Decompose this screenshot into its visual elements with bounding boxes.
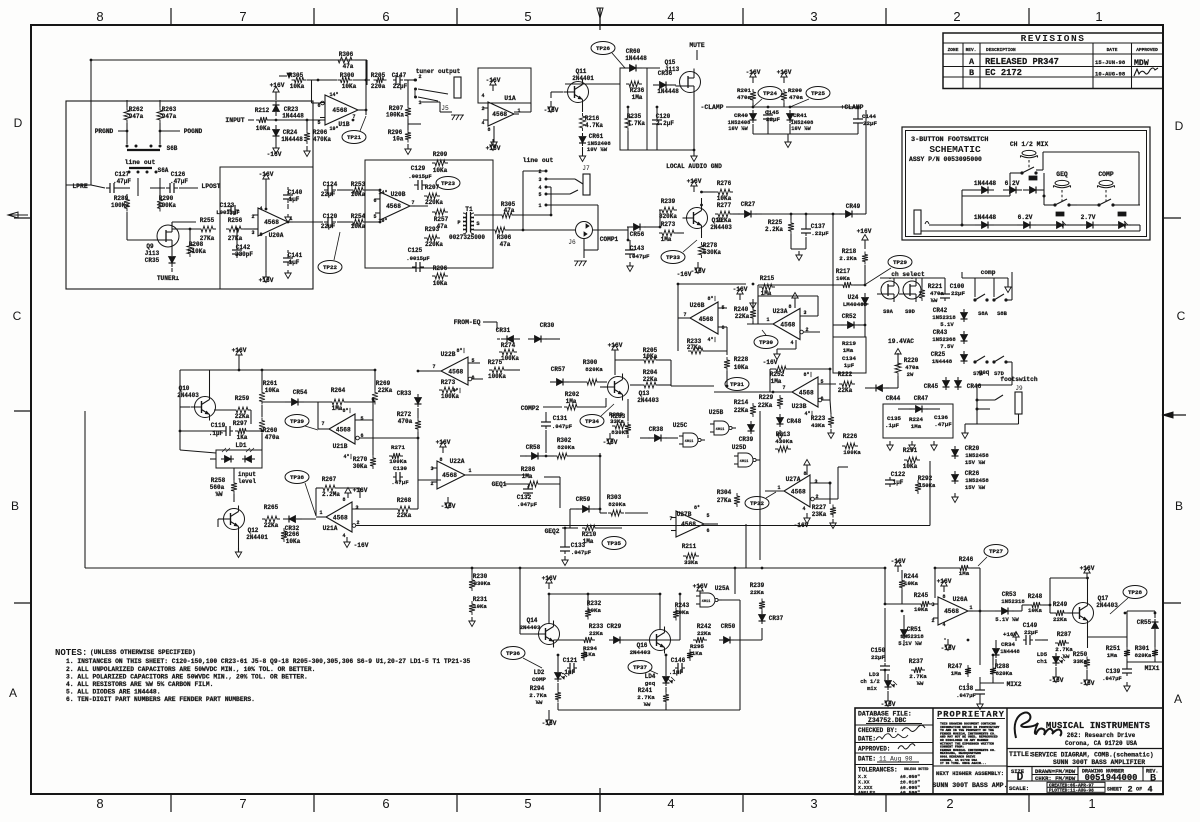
- svg-text:8: 8: [96, 796, 103, 811]
- svg-text:CR61: CR61: [589, 133, 604, 140]
- svg-text:R293: R293: [425, 226, 440, 233]
- svg-text:S8A: S8A: [978, 311, 988, 317]
- svg-text:J5: J5: [441, 105, 449, 112]
- svg-text:-16V: -16V: [354, 542, 369, 549]
- svg-text:R266: R266: [285, 531, 300, 538]
- svg-text:R210: R210: [582, 531, 597, 538]
- svg-text:R306: R306: [339, 51, 354, 58]
- svg-text:4568: 4568: [492, 111, 507, 118]
- svg-text:22Ka: 22Ka: [697, 630, 711, 637]
- svg-text:±0.500": ±0.500": [900, 790, 920, 796]
- svg-text:CR55: CR55: [1137, 619, 1152, 626]
- svg-text:CR44: CR44: [886, 395, 901, 402]
- svg-text:C135: C135: [887, 415, 901, 422]
- svg-text:C145: C145: [765, 109, 779, 116]
- svg-text:R255: R255: [200, 217, 215, 224]
- svg-text:1µF: 1µF: [844, 362, 855, 369]
- svg-text:R288: R288: [995, 663, 1010, 670]
- svg-text:R256: R256: [228, 217, 243, 224]
- svg-text:820Ka: 820Ka: [585, 366, 603, 373]
- svg-text:ZONE: ZONE: [948, 47, 959, 53]
- svg-text:Q11: Q11: [576, 68, 587, 75]
- svg-text:5: 5: [373, 214, 376, 220]
- svg-text:8: 8: [439, 457, 442, 463]
- svg-text:220a: 220a: [371, 83, 386, 90]
- svg-text:U21A: U21A: [323, 525, 338, 532]
- svg-text:NEXT HIGHER ASSEMBLY:: NEXT HIGHER ASSEMBLY:: [936, 771, 1004, 777]
- svg-text:+16V: +16V: [857, 228, 872, 235]
- svg-text:7: 7: [321, 421, 324, 427]
- svg-text:L0033µF: L0033µF: [216, 209, 240, 216]
- svg-text:33Ka: 33Ka: [684, 559, 698, 566]
- svg-text:5: 5: [524, 9, 531, 24]
- svg-text:100Ka: 100Ka: [158, 202, 176, 209]
- svg-text:B: B: [11, 499, 19, 513]
- svg-text:¼W: ¼W: [644, 701, 651, 708]
- svg-text:1Ma: 1Ma: [843, 347, 854, 354]
- svg-text:TP35: TP35: [607, 540, 621, 547]
- svg-text:100Ka: 100Ka: [488, 373, 506, 380]
- svg-text:4: 4: [342, 533, 345, 539]
- svg-text:REVISIONS: REVISIONS: [1021, 33, 1086, 44]
- svg-text:22Ka: 22Ka: [758, 402, 773, 409]
- svg-text:R258: R258: [211, 477, 226, 484]
- svg-text:R229: R229: [759, 394, 774, 401]
- svg-text:DESCRIPTION: DESCRIPTION: [986, 47, 1016, 53]
- svg-text:(UNLESS OTHERWISE SPECIFIED): (UNLESS OTHERWISE SPECIFIED): [90, 649, 196, 656]
- svg-text:C149: C149: [1023, 622, 1038, 629]
- svg-text:CR46: CR46: [967, 383, 982, 390]
- svg-text:10Ka: 10Ka: [643, 353, 658, 360]
- svg-text:+CLAMP: +CLAMP: [840, 104, 863, 111]
- svg-text:330Ka: 330Ka: [474, 580, 491, 587]
- svg-text:S6B: S6B: [167, 145, 178, 152]
- svg-text:10a: 10a: [393, 136, 404, 143]
- svg-text:22Ka: 22Ka: [264, 522, 279, 529]
- svg-text:C141: C141: [288, 252, 303, 259]
- svg-text:R277: R277: [717, 202, 732, 209]
- svg-text:22Ka: 22Ka: [643, 376, 658, 383]
- svg-text:P: P: [457, 220, 460, 226]
- svg-text:R224: R224: [909, 416, 923, 423]
- svg-text:1Ma: 1Ma: [959, 570, 970, 577]
- svg-text:2N4401: 2N4401: [572, 75, 594, 82]
- svg-text:C147: C147: [392, 72, 407, 79]
- svg-text:4568: 4568: [332, 107, 347, 114]
- svg-text:2N4403: 2N4403: [630, 649, 651, 656]
- svg-text:4*|: 4*|: [707, 337, 716, 343]
- svg-text:2.7Ka: 2.7Ka: [637, 694, 655, 701]
- svg-text:U25A: U25A: [715, 585, 730, 592]
- svg-text:R253: R253: [351, 181, 366, 188]
- svg-text:tuner output: tuner output: [416, 68, 461, 75]
- svg-text:3: 3: [810, 9, 817, 24]
- svg-text:7.5V: 7.5V: [940, 343, 954, 350]
- svg-text:4568: 4568: [264, 219, 279, 226]
- svg-text:6: 6: [706, 528, 709, 534]
- svg-text:CR48: CR48: [787, 418, 802, 425]
- svg-text:10Ka: 10Ka: [256, 125, 271, 132]
- svg-text:UNLESS NOTED: UNLESS NOTED: [904, 768, 928, 772]
- svg-text:1N52318: 1N52318: [900, 633, 924, 640]
- svg-text:GEQ1: GEQ1: [492, 481, 507, 488]
- svg-text:C136: C136: [934, 414, 948, 421]
- svg-text:R236: R236: [630, 87, 645, 94]
- svg-text:C129: C129: [411, 165, 426, 172]
- svg-text:4: 4: [538, 185, 541, 191]
- svg-text:SERVICE DIAGRAM, COMB.(schemat: SERVICE DIAGRAM, COMB.(schematic): [1031, 752, 1154, 759]
- svg-text:100Ka: 100Ka: [501, 355, 519, 362]
- svg-text:.1µF: .1µF: [885, 422, 899, 429]
- svg-text:R304: R304: [717, 489, 732, 496]
- svg-text:C132: C132: [517, 494, 532, 501]
- svg-text:TP27: TP27: [989, 548, 1003, 555]
- svg-text:6: 6: [373, 198, 376, 204]
- svg-text:8: 8: [487, 127, 490, 133]
- svg-text:C122: C122: [891, 471, 906, 478]
- svg-text:CR30: CR30: [540, 322, 555, 329]
- svg-text:2N4403: 2N4403: [1096, 602, 1118, 609]
- svg-text:27Ka: 27Ka: [228, 235, 243, 242]
- svg-text:EC 2172: EC 2172: [985, 68, 1022, 78]
- svg-text:22Ka: 22Ka: [235, 413, 250, 420]
- svg-text:NOTES:: NOTES:: [55, 648, 87, 658]
- svg-text:5.1V: 5.1V: [940, 321, 954, 328]
- svg-text:.047µF: .047µF: [1102, 676, 1121, 682]
- svg-text:947a: 947a: [162, 113, 177, 120]
- svg-text:CR34: CR34: [1001, 641, 1015, 648]
- svg-text:2: 2: [251, 214, 254, 220]
- svg-text:R302: R302: [557, 437, 572, 444]
- svg-text:INPUT: INPUT: [225, 117, 244, 124]
- svg-text:R292: R292: [918, 475, 933, 482]
- svg-text:TP30: TP30: [759, 339, 773, 346]
- svg-text:.1µF: .1µF: [669, 669, 684, 676]
- svg-text:R278: R278: [703, 242, 718, 249]
- svg-text:U23A: U23A: [773, 308, 788, 315]
- svg-text:.22µF: .22µF: [811, 230, 829, 237]
- svg-text:830Ka: 830Ka: [611, 429, 629, 436]
- svg-text:1N4448: 1N4448: [657, 88, 679, 95]
- svg-text:15-JUN-98: 15-JUN-98: [1095, 59, 1126, 66]
- svg-text:C120: C120: [323, 213, 338, 220]
- svg-text:15V ½W: 15V ½W: [965, 459, 986, 466]
- svg-text:820Ka: 820Ka: [996, 670, 1013, 677]
- svg-text:530Ka: 530Ka: [703, 249, 721, 256]
- svg-text:470a: 470a: [398, 418, 413, 425]
- svg-text:10Ka: 10Ka: [734, 364, 749, 371]
- svg-text:TP32: TP32: [750, 500, 764, 507]
- svg-text:4.7Ka: 4.7Ka: [585, 122, 603, 129]
- svg-text:22Ka: 22Ka: [735, 313, 750, 320]
- svg-text:SUNN 300T BASS AMPLIFIER: SUNN 300T BASS AMPLIFIER: [1053, 759, 1145, 766]
- svg-text:COMP1: COMP1: [600, 236, 619, 243]
- svg-text:10Ka: 10Ka: [286, 538, 301, 545]
- svg-text:R294: R294: [530, 685, 545, 692]
- svg-text:27Ka: 27Ka: [717, 497, 732, 504]
- svg-text:1: 1: [468, 468, 471, 474]
- svg-text:4568: 4568: [799, 390, 814, 397]
- svg-text:10-AUG-98: 10-AUG-98: [1095, 71, 1126, 78]
- svg-text:1N52318: 1N52318: [1001, 598, 1025, 605]
- svg-text:R233: R233: [589, 623, 604, 630]
- svg-text:2: 2: [953, 9, 960, 24]
- svg-text:COMP: COMP: [532, 676, 546, 683]
- svg-text:CR26: CR26: [965, 470, 980, 477]
- svg-text:R202: R202: [565, 391, 580, 398]
- svg-text:22Ka: 22Ka: [734, 407, 749, 414]
- svg-text:1: 1: [319, 510, 322, 516]
- svg-text:Q15: Q15: [665, 59, 676, 66]
- svg-text:1µF: 1µF: [289, 259, 300, 266]
- svg-text:U22B: U22B: [441, 351, 456, 358]
- svg-text:.047µF: .047µF: [552, 423, 573, 430]
- svg-text:C146: C146: [671, 657, 686, 664]
- svg-text:R272: R272: [397, 411, 412, 418]
- svg-text:COMP: COMP: [1098, 171, 1114, 178]
- svg-text:10Ka: 10Ka: [836, 275, 850, 282]
- svg-text:R270: R270: [353, 456, 368, 463]
- svg-text:S8B: S8B: [997, 311, 1007, 317]
- svg-text:Corona, CA 91720 USA: Corona, CA 91720 USA: [1065, 740, 1137, 747]
- svg-text:R204: R204: [643, 369, 658, 376]
- svg-text:B: B: [969, 68, 974, 78]
- svg-text:¼W: ¼W: [536, 699, 543, 706]
- svg-text:PLOTTED:11-AUG-98: PLOTTED:11-AUG-98: [1049, 789, 1094, 794]
- svg-text:2: 2: [430, 481, 433, 487]
- svg-text:10Ka: 10Ka: [675, 609, 689, 616]
- svg-text:R207: R207: [425, 184, 440, 191]
- svg-text:23Ka: 23Ka: [812, 511, 827, 518]
- svg-text:.0015µF: .0015µF: [408, 173, 432, 180]
- svg-text:COMP2: COMP2: [521, 405, 540, 412]
- svg-text:C125: C125: [408, 247, 423, 254]
- svg-text:R242: R242: [697, 623, 712, 630]
- svg-text:CR56: CR56: [630, 231, 645, 238]
- svg-text:470Ka: 470Ka: [313, 136, 331, 143]
- svg-text:470a: 470a: [789, 94, 803, 101]
- svg-text:R222: R222: [838, 371, 853, 378]
- svg-text:D: D: [1017, 771, 1024, 784]
- svg-text:R251: R251: [1106, 645, 1121, 652]
- svg-text:-16V: -16V: [677, 271, 692, 278]
- svg-text:CR29: CR29: [607, 623, 622, 630]
- svg-text:C121: C121: [563, 657, 578, 664]
- svg-text:5: 5: [538, 192, 541, 198]
- svg-text:C130: C130: [393, 465, 407, 472]
- svg-text:2N4401: 2N4401: [246, 534, 268, 541]
- svg-text:R252: R252: [770, 371, 785, 378]
- svg-text:CR59: CR59: [576, 496, 591, 503]
- svg-text:2: 2: [418, 74, 421, 80]
- svg-text:2: 2: [538, 169, 541, 175]
- svg-text:R257: R257: [434, 216, 449, 223]
- svg-text:3: 3: [931, 602, 934, 608]
- svg-text:150Ka: 150Ka: [919, 482, 936, 489]
- svg-text:820Ka: 820Ka: [557, 444, 575, 451]
- svg-text:U1A: U1A: [504, 95, 516, 102]
- svg-text:R250: R250: [1073, 651, 1088, 658]
- svg-text:4011: 4011: [740, 460, 749, 464]
- svg-text:CR45: CR45: [924, 383, 939, 390]
- svg-text:CR58: CR58: [526, 444, 541, 451]
- svg-text:1: 1: [538, 203, 541, 209]
- svg-text:R208: R208: [189, 241, 204, 248]
- svg-text:R218: R218: [842, 248, 857, 255]
- svg-text:TP39: TP39: [290, 418, 304, 425]
- svg-text:C139: C139: [1106, 668, 1121, 675]
- svg-text:2: 2: [946, 796, 953, 811]
- svg-text:4: 4: [667, 9, 674, 24]
- svg-text:R249: R249: [1053, 601, 1068, 608]
- svg-text:J113: J113: [145, 250, 160, 257]
- svg-text:C140: C140: [288, 189, 303, 196]
- svg-text:R227: R227: [812, 504, 827, 511]
- svg-text:S9A: S9A: [883, 309, 893, 315]
- svg-text:R269: R269: [376, 380, 391, 387]
- svg-text:U26A: U26A: [953, 596, 968, 603]
- svg-text:R287: R287: [1057, 631, 1072, 638]
- svg-text:CR43: CR43: [933, 329, 948, 336]
- svg-text:U25C: U25C: [673, 422, 688, 429]
- svg-text:½W: ½W: [1063, 653, 1070, 660]
- svg-text:-CLAMP: -CLAMP: [700, 104, 723, 111]
- svg-text:4568: 4568: [336, 427, 351, 434]
- svg-text:8: 8: [96, 9, 103, 24]
- svg-text:U25D: U25D: [732, 444, 747, 451]
- svg-text:-16V: -16V: [794, 522, 809, 529]
- svg-text:1: 1: [777, 485, 780, 491]
- svg-text:CR20: CR20: [965, 445, 980, 452]
- svg-text:U23B: U23B: [792, 403, 807, 410]
- svg-text:10V ½W: 10V ½W: [587, 146, 608, 153]
- svg-text:TP23: TP23: [441, 180, 455, 187]
- svg-text:CR38: CR38: [649, 426, 664, 433]
- svg-text:R213: R213: [776, 431, 791, 438]
- svg-text:4568: 4568: [448, 369, 463, 376]
- svg-text:22Ka: 22Ka: [589, 630, 603, 637]
- svg-text:8*|: 8*|: [803, 372, 812, 378]
- svg-text:7: 7: [411, 200, 414, 206]
- svg-text:J7: J7: [582, 165, 590, 172]
- svg-text:8: 8: [342, 497, 345, 503]
- svg-text:R221: R221: [928, 283, 943, 290]
- svg-text:U1B: U1B: [338, 121, 349, 128]
- svg-text:6: 6: [721, 325, 724, 331]
- svg-text:ANGLES: ANGLES: [858, 790, 875, 796]
- svg-text:CR41: CR41: [793, 112, 807, 119]
- svg-text:REV.: REV.: [966, 47, 977, 53]
- svg-text:R274: R274: [501, 342, 516, 349]
- svg-text:22µF: 22µF: [951, 290, 965, 297]
- svg-text:4011: 4011: [716, 428, 725, 432]
- svg-text:2N4403: 2N4403: [637, 397, 659, 404]
- svg-text:CR42: CR42: [933, 307, 948, 314]
- svg-text:C138: C138: [959, 685, 974, 692]
- svg-text:5: 5: [524, 796, 531, 811]
- svg-text:R267: R267: [322, 476, 337, 483]
- svg-text:geq: geq: [979, 369, 990, 376]
- svg-text:R265: R265: [264, 504, 279, 511]
- svg-text:RELEASED PR347: RELEASED PR347: [985, 57, 1059, 67]
- svg-text:4568: 4568: [699, 316, 714, 323]
- svg-text:6: 6: [382, 9, 389, 24]
- svg-text:2.2Ka: 2.2Ka: [765, 226, 783, 233]
- svg-text:R296: R296: [433, 265, 448, 272]
- svg-text:R306: R306: [497, 234, 512, 241]
- svg-text:4568: 4568: [442, 472, 457, 479]
- svg-text:4: 4: [259, 206, 262, 212]
- svg-text:R226: R226: [843, 433, 858, 440]
- svg-text:5: 5: [360, 416, 363, 422]
- svg-text:820Ka: 820Ka: [1135, 652, 1152, 659]
- svg-text:1µF: 1µF: [289, 196, 300, 203]
- svg-text:3: 3: [251, 230, 254, 236]
- svg-text:6: 6: [317, 103, 320, 109]
- svg-text:U20B: U20B: [391, 191, 406, 198]
- svg-text:5.1V ½W: 5.1V ½W: [995, 616, 1019, 623]
- svg-text:R286: R286: [521, 466, 536, 473]
- svg-text:DATE: DATE: [1107, 47, 1118, 53]
- svg-text:470a: 470a: [737, 94, 751, 101]
- svg-text:1: 1: [1095, 9, 1102, 24]
- svg-text:SHEET: SHEET: [1107, 787, 1122, 793]
- svg-text:R215: R215: [760, 275, 775, 282]
- svg-text:D: D: [1175, 119, 1184, 133]
- svg-text:8: 8: [803, 471, 806, 477]
- svg-text:8*|: 8*|: [707, 296, 716, 302]
- svg-text:CR24: CR24: [283, 129, 298, 136]
- svg-text:15V ½W: 15V ½W: [965, 484, 986, 491]
- svg-text:8: 8: [942, 594, 945, 600]
- svg-text:Q16: Q16: [637, 642, 648, 649]
- svg-text:330pF: 330pF: [235, 251, 253, 258]
- svg-text:22Ka: 22Ka: [717, 217, 732, 224]
- svg-text:TP28: TP28: [1128, 589, 1142, 596]
- svg-text:.47µF: .47µF: [391, 479, 409, 486]
- svg-text:C100: C100: [950, 283, 965, 290]
- svg-text:B: B: [1175, 499, 1183, 513]
- svg-text:10Ka: 10Ka: [342, 83, 357, 90]
- svg-text:CR47: CR47: [914, 395, 929, 402]
- svg-text:2.7Ka: 2.7Ka: [909, 673, 927, 680]
- svg-text:U27A: U27A: [786, 476, 801, 483]
- svg-text:100Ka: 100Ka: [389, 458, 407, 465]
- svg-text:.0015µF: .0015µF: [406, 255, 430, 262]
- svg-text:APPROVED: APPROVED: [1136, 47, 1158, 53]
- svg-text:CR52: CR52: [842, 313, 857, 320]
- svg-text:SUNN 300T BASS AMP.: SUNN 300T BASS AMP.: [932, 782, 1007, 789]
- svg-text:1Ma: 1Ma: [1107, 652, 1118, 659]
- svg-text:33Ka: 33Ka: [1073, 658, 1087, 665]
- svg-text:CHECKED BY:: CHECKED BY:: [858, 727, 898, 734]
- svg-text:TP22: TP22: [323, 264, 337, 271]
- svg-text:ch1: ch1: [1037, 658, 1048, 665]
- svg-text:MDW: MDW: [1134, 59, 1149, 68]
- svg-text:1Ma: 1Ma: [951, 670, 962, 677]
- svg-text:CR53: CR53: [1002, 591, 1017, 598]
- svg-text:Q17: Q17: [1098, 595, 1109, 602]
- svg-text:LD1: LD1: [235, 442, 246, 449]
- svg-text:FROM-EQ: FROM-EQ: [454, 319, 481, 326]
- svg-text:R206: R206: [313, 129, 328, 136]
- svg-text:.47µF: .47µF: [934, 421, 952, 428]
- svg-text:Q14: Q14: [527, 617, 538, 624]
- svg-text:DRAWN=FM/MDW: DRAWN=FM/MDW: [1035, 768, 1076, 775]
- svg-text:10Ka: 10Ka: [1028, 607, 1042, 614]
- svg-text:R219: R219: [842, 340, 856, 347]
- svg-text:1N4448: 1N4448: [281, 136, 303, 143]
